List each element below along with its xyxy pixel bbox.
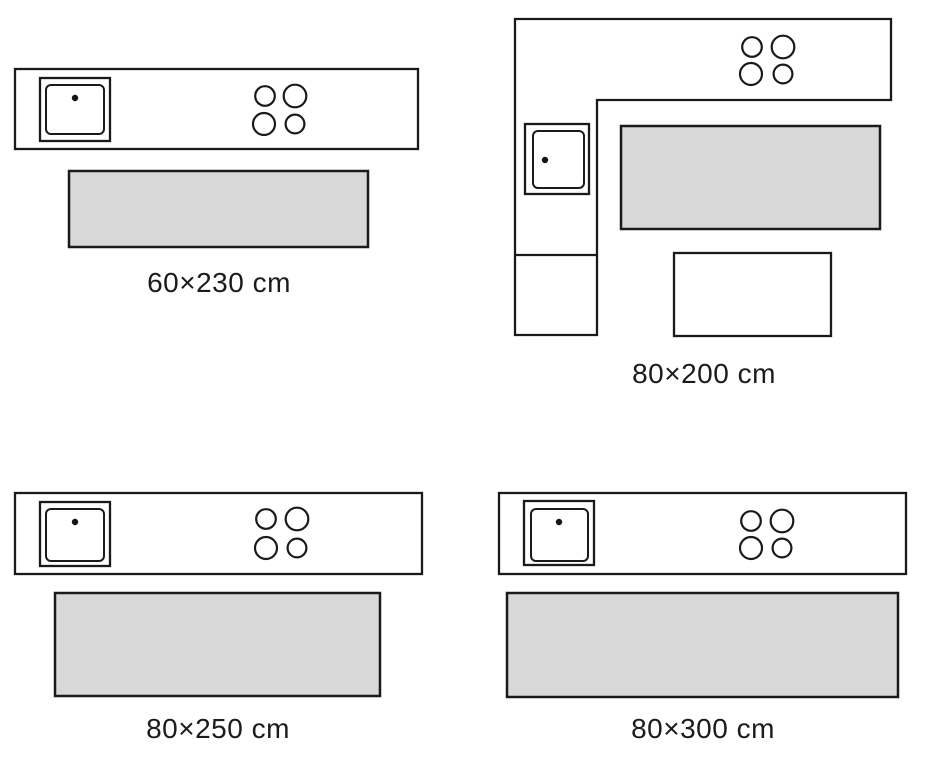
size-label-80x200: 80×200 cm bbox=[579, 359, 829, 389]
faucet-dot-icon bbox=[556, 519, 562, 525]
size-label-80x250: 80×250 cm bbox=[93, 714, 343, 744]
sink-basin bbox=[46, 85, 104, 134]
sink-basin bbox=[533, 131, 584, 188]
table-outline bbox=[674, 253, 831, 336]
faucet-dot-icon bbox=[72, 95, 78, 101]
diagram-80x200 bbox=[515, 19, 891, 336]
kitchen-rug-size-guide: 60×230 cm 80×200 cm 80×250 cm 80×300 cm bbox=[0, 0, 930, 760]
sink-basin bbox=[531, 509, 588, 561]
faucet-dot-icon bbox=[542, 157, 548, 163]
size-label-80x300: 80×300 cm bbox=[578, 714, 828, 744]
sink-basin bbox=[46, 509, 104, 561]
diagram-60x230 bbox=[15, 69, 418, 247]
rug-80x250 bbox=[55, 593, 380, 696]
faucet-dot-icon bbox=[72, 519, 78, 525]
rug-80x200 bbox=[621, 126, 880, 229]
rug-60x230 bbox=[69, 171, 368, 247]
rug-80x300 bbox=[507, 593, 898, 697]
diagram-80x250 bbox=[15, 493, 422, 696]
size-label-60x230: 60×230 cm bbox=[94, 268, 344, 298]
diagram-80x300 bbox=[499, 493, 906, 697]
